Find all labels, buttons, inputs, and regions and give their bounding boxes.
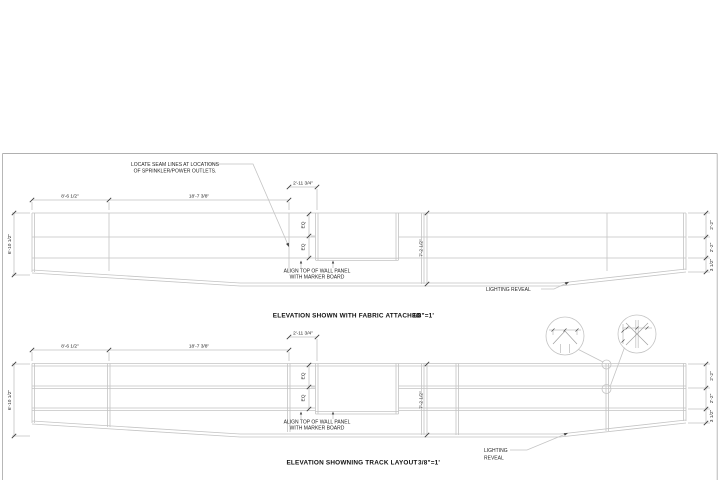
dim-notch-width-bottom: 2'-11 3/4" <box>293 331 313 337</box>
top-elevation-title: ELEVATION SHOWN WITH FABRIC ATTACHED 3/8… <box>273 313 435 320</box>
align-note-line-2-bottom: WITH MARKER BOARD <box>290 426 345 432</box>
track-detail-circles <box>546 315 656 394</box>
bottom-title-scale: 3/8"=1' <box>418 460 440 467</box>
lighting-reveal-note: LIGHTING REVEAL <box>486 287 531 293</box>
drawing-sheet: 8'-6 1/2" 18'-7 3/8" 2'-11 3/4" 6'-10 1/… <box>0 0 720 480</box>
dim-panel-width-1: 8'-6 1/2" <box>61 194 79 200</box>
bottom-elevation: 8'-6 1/2" 18'-7 3/8" 2'-11 3/4" 6'-10 1/… <box>7 315 715 467</box>
lighting-note-line-1: LIGHTING <box>484 448 508 454</box>
seam-note-line-2: OF SPRINKLER/POWER OUTLETS. <box>134 169 217 175</box>
detail-marker-top <box>602 360 611 369</box>
bottom-elevation-title: ELEVATION SHOWNING TRACK LAYOUT 3/8"=1' <box>286 460 440 467</box>
dim-total-height: 6'-10 1/2" <box>7 234 13 255</box>
dim-reveal-height-bottom: 3 1/2" <box>709 410 715 423</box>
seam-note-line-1: LOCATE SEAM LINES AT LOCATIONS <box>131 162 220 168</box>
align-leader-arrow-right <box>332 261 334 264</box>
dim-band-height-2: 2'-2" <box>709 242 715 252</box>
dim-total-height-bottom: 6'-10 1/2" <box>7 390 13 411</box>
bottom-elevation-notes: ALIGN TOP OF WALL PANEL WITH MARKER BOAR… <box>284 420 508 462</box>
top-elevation: 8'-6 1/2" 18'-7 3/8" 2'-11 3/4" 6'-10 1/… <box>7 162 715 320</box>
elevation-drawing-canvas: 8'-6 1/2" 18'-7 3/8" 2'-11 3/4" 6'-10 1/… <box>0 0 720 480</box>
lighting-leader-arrow <box>565 282 569 285</box>
detail-circle-corner <box>546 317 584 355</box>
dim-band-height-1-bottom: 2'-2" <box>709 371 715 381</box>
top-elevation-dimensions: 8'-6 1/2" 18'-7 3/8" 2'-11 3/4" 6'-10 1/… <box>7 164 715 289</box>
bottom-elevation-wall <box>32 364 686 438</box>
top-title-scale: 3/8"=1' <box>412 313 434 320</box>
dim-notch-width: 2'-11 3/4" <box>293 181 313 187</box>
align-note-line-2: WITH MARKER BOARD <box>290 275 345 281</box>
dim-reveal-height: 3 1/2" <box>709 259 715 272</box>
seam-leader-arrow <box>286 243 289 247</box>
lighting-note-line-2: REVEAL <box>484 456 504 462</box>
top-elevation-notes: LOCATE SEAM LINES AT LOCATIONS OF SPRINK… <box>131 162 531 293</box>
top-title: ELEVATION SHOWN WITH FABRIC ATTACHED <box>273 313 422 320</box>
align-leader-arrow-left <box>300 261 302 264</box>
dim-band-height-1: 2'-2" <box>709 220 715 230</box>
lighting-leader-arrow-bottom <box>564 433 568 436</box>
dim-panel-height: 7'-2 1/2" <box>419 239 425 257</box>
dim-eq-upper: EQ <box>301 221 307 228</box>
dim-panel-width-2-bottom: 18'-7 3/8" <box>189 344 210 350</box>
dim-panel-width-2: 18'-7 3/8" <box>189 194 210 200</box>
dim-panel-width-1-bottom: 8'-6 1/2" <box>61 344 79 350</box>
align-leader-arrow-right-bottom <box>332 412 334 415</box>
bottom-title: ELEVATION SHOWNING TRACK LAYOUT <box>286 460 417 467</box>
align-leader-arrow-left-bottom <box>300 412 302 415</box>
dim-panel-height-bottom: 7'-2 1/2" <box>419 391 425 409</box>
top-elevation-wall <box>32 213 686 286</box>
dim-eq-lower: EQ <box>301 243 307 250</box>
dim-eq-upper-bottom: EQ <box>301 372 307 379</box>
dim-band-height-2-bottom: 2'-2" <box>709 393 715 403</box>
dim-eq-lower-bottom: EQ <box>301 394 307 401</box>
